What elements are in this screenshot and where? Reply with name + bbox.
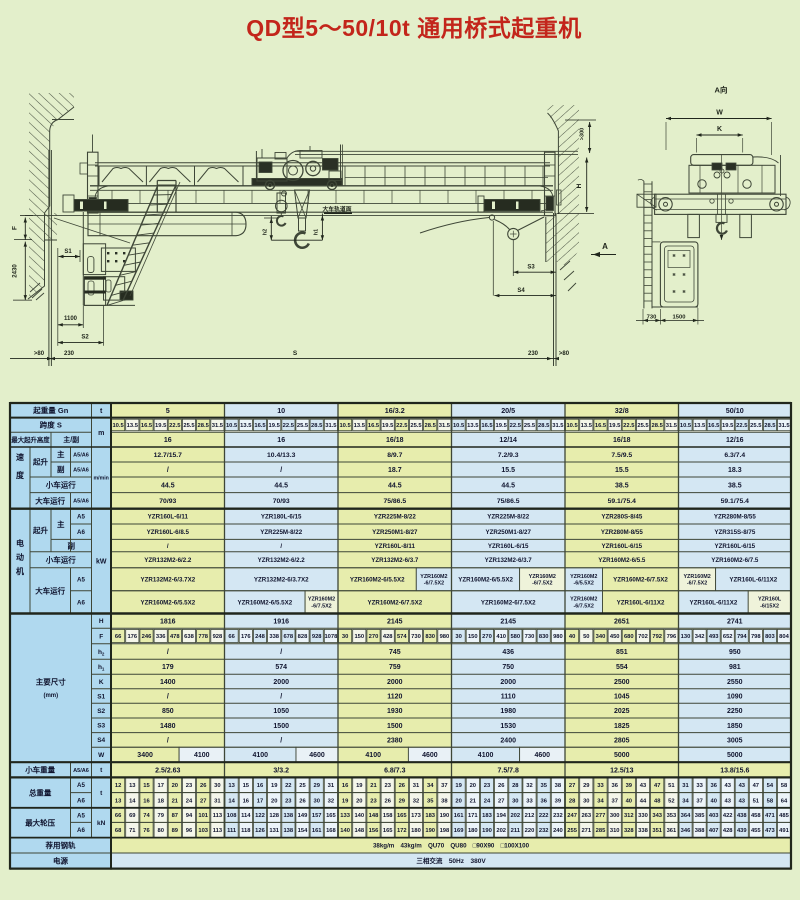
svg-text:230: 230 <box>64 351 75 357</box>
svg-text:140: 140 <box>354 813 364 819</box>
svg-text:1100: 1100 <box>64 316 78 322</box>
svg-text:8/9.7: 8/9.7 <box>387 452 402 459</box>
svg-text:13: 13 <box>129 783 136 789</box>
svg-text:YZR160M2-6/5.5X2: YZR160M2-6/5.5X2 <box>350 577 405 584</box>
svg-text:22.5: 22.5 <box>396 423 408 429</box>
svg-text:2000: 2000 <box>273 679 289 686</box>
svg-text:H: H <box>99 618 104 625</box>
svg-text:730: 730 <box>647 315 657 321</box>
svg-text:S2: S2 <box>81 335 89 341</box>
svg-text:678: 678 <box>283 634 293 640</box>
svg-text:7.5/7.8: 7.5/7.8 <box>497 767 519 774</box>
svg-text:1980: 1980 <box>500 708 516 715</box>
svg-text:338: 338 <box>638 828 648 834</box>
svg-text:702: 702 <box>638 634 648 640</box>
svg-text:33: 33 <box>597 783 604 789</box>
svg-text:/: / <box>280 737 282 744</box>
svg-text:194: 194 <box>496 813 506 819</box>
svg-text:25.5: 25.5 <box>524 423 536 429</box>
svg-text:25.5: 25.5 <box>183 423 195 429</box>
svg-text:YZR160L-6/15: YZR160L-6/15 <box>602 543 643 550</box>
svg-text:32: 32 <box>328 798 334 804</box>
svg-text:126: 126 <box>255 828 265 834</box>
svg-text:336: 336 <box>156 634 166 640</box>
svg-text:156: 156 <box>369 828 379 834</box>
svg-text:>300: >300 <box>580 128 586 140</box>
svg-text:47: 47 <box>654 783 660 789</box>
svg-text:机: 机 <box>16 566 24 576</box>
svg-text:YZR160M2-6/5.5: YZR160M2-6/5.5 <box>598 557 646 564</box>
svg-text:407: 407 <box>709 828 719 834</box>
svg-text:22: 22 <box>285 783 291 789</box>
svg-text:YZR160M2: YZR160M2 <box>529 574 556 580</box>
svg-text:m: m <box>98 430 104 437</box>
svg-text:190: 190 <box>440 813 450 819</box>
svg-text:24: 24 <box>484 798 491 804</box>
svg-text:10: 10 <box>277 406 285 415</box>
svg-text:66: 66 <box>115 634 122 640</box>
svg-text:40: 40 <box>626 798 632 804</box>
svg-text:87: 87 <box>172 813 178 819</box>
svg-text:33: 33 <box>526 798 533 804</box>
svg-text:638: 638 <box>184 634 194 640</box>
svg-text:161: 161 <box>312 828 322 834</box>
svg-text:34: 34 <box>427 783 434 789</box>
svg-text:31: 31 <box>328 783 335 789</box>
svg-text:1090: 1090 <box>727 694 743 701</box>
svg-text:271: 271 <box>581 828 591 834</box>
svg-text:277: 277 <box>596 813 606 819</box>
svg-text:27: 27 <box>498 798 504 804</box>
svg-text:212: 212 <box>525 813 535 819</box>
svg-text:30: 30 <box>455 634 461 640</box>
svg-text:161: 161 <box>454 813 464 819</box>
svg-text:330: 330 <box>638 813 648 819</box>
svg-text:A5/A6: A5/A6 <box>73 499 89 505</box>
svg-text:31.5: 31.5 <box>325 423 337 429</box>
svg-text:2.5/2.63: 2.5/2.63 <box>155 767 180 774</box>
svg-text:23: 23 <box>484 783 491 789</box>
svg-text:16.5: 16.5 <box>254 423 266 429</box>
svg-text:13: 13 <box>115 798 122 804</box>
svg-text:YZR250M1-8/27: YZR250M1-8/27 <box>372 529 418 536</box>
svg-text:5000: 5000 <box>727 752 743 759</box>
svg-text:20: 20 <box>356 798 362 804</box>
svg-text:750: 750 <box>502 664 514 671</box>
svg-text:A6: A6 <box>77 599 85 606</box>
svg-text:66: 66 <box>115 813 122 819</box>
svg-text:328: 328 <box>624 828 634 834</box>
svg-text:59.1/75.4: 59.1/75.4 <box>721 498 750 505</box>
svg-text:/: / <box>167 543 169 550</box>
svg-text:7.2/9.3: 7.2/9.3 <box>498 452 519 459</box>
svg-text:-6/15X2: -6/15X2 <box>760 603 779 609</box>
svg-text:94: 94 <box>186 813 193 819</box>
svg-text:101: 101 <box>198 813 208 819</box>
svg-text:大车运行: 大车运行 <box>35 585 65 595</box>
svg-text:25.5: 25.5 <box>637 423 649 429</box>
svg-text:17: 17 <box>257 798 263 804</box>
svg-text:YZR132M2-6/3.7X2: YZR132M2-6/3.7X2 <box>254 577 309 584</box>
svg-text:980: 980 <box>553 634 563 640</box>
svg-text:19.5: 19.5 <box>382 423 394 429</box>
svg-text:1500: 1500 <box>387 723 403 730</box>
svg-text:35: 35 <box>540 783 547 789</box>
svg-text:574: 574 <box>397 634 407 640</box>
svg-text:450: 450 <box>610 634 620 640</box>
svg-text:/: / <box>167 649 169 656</box>
svg-text:16.5: 16.5 <box>708 423 720 429</box>
svg-text:YZR225M-8/22: YZR225M-8/22 <box>374 514 417 521</box>
svg-text:YZR160M2: YZR160M2 <box>570 574 597 580</box>
svg-text:652: 652 <box>723 634 733 640</box>
svg-text:32: 32 <box>526 783 532 789</box>
svg-text:10.5: 10.5 <box>566 423 578 429</box>
svg-text:20: 20 <box>470 783 476 789</box>
svg-text:动: 动 <box>16 552 24 562</box>
svg-text:S3: S3 <box>97 723 105 730</box>
svg-text:428: 428 <box>723 828 733 834</box>
svg-text:4600: 4600 <box>535 752 551 759</box>
svg-text:35: 35 <box>427 798 434 804</box>
svg-text:51: 51 <box>668 783 675 789</box>
svg-text:/: / <box>280 467 282 474</box>
svg-text:19.5: 19.5 <box>609 423 621 429</box>
svg-text:493: 493 <box>709 634 719 640</box>
svg-text:44.5: 44.5 <box>501 482 515 489</box>
svg-text:16: 16 <box>257 783 264 789</box>
svg-text:491: 491 <box>779 828 789 834</box>
svg-text:kN: kN <box>97 820 106 827</box>
svg-text:2550: 2550 <box>727 679 743 686</box>
svg-text:71: 71 <box>129 828 136 834</box>
svg-text:176: 176 <box>127 634 137 640</box>
svg-text:YZR280S-8/45: YZR280S-8/45 <box>601 514 642 521</box>
svg-text:202: 202 <box>496 828 506 834</box>
svg-text:13.5: 13.5 <box>694 423 706 429</box>
svg-text:12/16: 12/16 <box>726 437 744 444</box>
svg-text:285: 285 <box>596 828 606 834</box>
svg-text:YZR132M2-6/2.2: YZR132M2-6/2.2 <box>144 557 192 564</box>
svg-text:1500: 1500 <box>273 723 289 730</box>
svg-text:27: 27 <box>569 783 575 789</box>
svg-text:10.5: 10.5 <box>226 423 238 429</box>
svg-text:A5/A6: A5/A6 <box>73 453 89 459</box>
svg-text:4100: 4100 <box>253 752 269 759</box>
svg-text:S4: S4 <box>517 288 525 294</box>
svg-text:YZR160M2: YZR160M2 <box>420 574 447 580</box>
svg-text:202: 202 <box>510 813 520 819</box>
svg-text:403: 403 <box>709 813 719 819</box>
svg-text:/: / <box>280 649 282 656</box>
svg-text:/: / <box>167 694 169 701</box>
svg-text:-6/5.5X2: -6/5.5X2 <box>574 580 594 586</box>
svg-text:2651: 2651 <box>614 618 630 625</box>
svg-text:165: 165 <box>383 828 393 834</box>
svg-text:12.7/15.7: 12.7/15.7 <box>154 452 183 459</box>
svg-text:A5/A6: A5/A6 <box>73 768 89 774</box>
svg-text:19.5: 19.5 <box>269 423 281 429</box>
svg-text:22.5: 22.5 <box>169 423 181 429</box>
svg-text:14: 14 <box>228 798 235 804</box>
svg-text:电: 电 <box>16 538 24 548</box>
svg-text:YZR160L-6/8.5: YZR160L-6/8.5 <box>147 529 190 536</box>
svg-text:总重量: 总重量 <box>29 787 52 797</box>
svg-text:25.5: 25.5 <box>750 423 762 429</box>
svg-text:473: 473 <box>765 828 775 834</box>
svg-text:小车重量: 小车重量 <box>25 765 55 775</box>
svg-text:5000: 5000 <box>614 752 630 759</box>
svg-text:10.5: 10.5 <box>339 423 351 429</box>
svg-text:2741: 2741 <box>727 618 743 625</box>
svg-text:16.5: 16.5 <box>368 423 380 429</box>
svg-text:171: 171 <box>468 813 478 819</box>
svg-text:422: 422 <box>723 813 733 819</box>
svg-text:39: 39 <box>626 783 633 789</box>
svg-text:103: 103 <box>198 828 208 834</box>
svg-text:471: 471 <box>765 813 775 819</box>
svg-text:1930: 1930 <box>387 708 403 715</box>
svg-text:1050: 1050 <box>273 708 289 715</box>
svg-text:792: 792 <box>652 634 662 640</box>
svg-text:312: 312 <box>624 813 634 819</box>
svg-text:183: 183 <box>482 813 492 819</box>
svg-text:三相交流 50Hz 380V: 三相交流 50Hz 380V <box>416 856 486 865</box>
svg-text:23: 23 <box>370 798 377 804</box>
svg-text:21: 21 <box>470 798 477 804</box>
svg-text:13.5: 13.5 <box>354 423 366 429</box>
svg-text:26: 26 <box>399 783 406 789</box>
svg-text:240: 240 <box>553 828 563 834</box>
svg-text:16: 16 <box>342 783 349 789</box>
svg-text:310: 310 <box>610 828 620 834</box>
svg-text:YZR280M-8/55: YZR280M-8/55 <box>714 514 757 521</box>
svg-text:3005: 3005 <box>727 737 743 744</box>
svg-text:96: 96 <box>186 828 193 834</box>
svg-text:2000: 2000 <box>387 679 403 686</box>
svg-text:16: 16 <box>277 437 285 444</box>
svg-text:19.5: 19.5 <box>496 423 508 429</box>
svg-text:803: 803 <box>765 634 775 640</box>
svg-text:主: 主 <box>57 449 65 459</box>
svg-text:850: 850 <box>162 708 174 715</box>
svg-text:YZR250M1-8/27: YZR250M1-8/27 <box>485 529 531 536</box>
svg-text:F: F <box>99 633 103 640</box>
svg-text:26: 26 <box>384 798 391 804</box>
svg-text:YZR132M2-6/3.7: YZR132M2-6/3.7 <box>485 557 533 564</box>
svg-text:148: 148 <box>354 828 364 834</box>
svg-text:h1: h1 <box>314 229 320 235</box>
svg-text:428: 428 <box>383 634 393 640</box>
svg-text:70/93: 70/93 <box>273 498 290 505</box>
svg-text:н: н <box>672 289 675 295</box>
svg-text:31.5: 31.5 <box>778 423 790 429</box>
svg-text:W: W <box>98 752 105 759</box>
svg-text:43: 43 <box>724 783 731 789</box>
svg-text:13.5: 13.5 <box>127 423 139 429</box>
svg-text:44.5: 44.5 <box>388 482 402 489</box>
svg-text:778: 778 <box>198 634 208 640</box>
svg-text:起重量 Gn: 起重量 Gn <box>32 405 68 415</box>
svg-text:16/18: 16/18 <box>386 437 404 444</box>
svg-text:47: 47 <box>753 783 759 789</box>
svg-text:最大轮压: 最大轮压 <box>25 817 55 827</box>
svg-text:5: 5 <box>166 406 170 415</box>
svg-text:69: 69 <box>129 813 136 819</box>
svg-text:度: 度 <box>16 470 25 480</box>
svg-text:59.1/75.4: 59.1/75.4 <box>608 498 637 505</box>
svg-text:230: 230 <box>528 351 539 357</box>
svg-text:YZR280M-8/55: YZR280M-8/55 <box>601 529 644 536</box>
svg-text:436: 436 <box>502 649 514 656</box>
svg-text:165: 165 <box>326 813 336 819</box>
svg-text:54: 54 <box>767 783 774 789</box>
svg-text:851: 851 <box>616 649 628 656</box>
svg-text:190: 190 <box>425 828 435 834</box>
svg-text:YZR225M-8/22: YZR225M-8/22 <box>487 514 530 521</box>
svg-text:S2: S2 <box>97 708 105 715</box>
svg-text:S1: S1 <box>97 693 105 700</box>
svg-text:180: 180 <box>468 828 478 834</box>
svg-text:23: 23 <box>186 783 193 789</box>
svg-text:70/93: 70/93 <box>159 498 176 505</box>
svg-text:179: 179 <box>162 664 174 671</box>
svg-text:263: 263 <box>581 813 591 819</box>
svg-text:16: 16 <box>243 798 250 804</box>
svg-text:2145: 2145 <box>500 618 516 625</box>
svg-text:20: 20 <box>172 783 178 789</box>
svg-text:1045: 1045 <box>614 694 630 701</box>
svg-text:29: 29 <box>399 798 406 804</box>
svg-text:40: 40 <box>569 634 575 640</box>
svg-text:364: 364 <box>681 813 691 819</box>
svg-text:YZR160L-6/15: YZR160L-6/15 <box>488 543 529 550</box>
svg-text:YZR160L-6/11X2: YZR160L-6/11X2 <box>617 599 665 606</box>
svg-text:26: 26 <box>299 798 306 804</box>
svg-text:4100: 4100 <box>194 752 210 759</box>
svg-text:7.5/9.5: 7.5/9.5 <box>611 452 632 459</box>
svg-text:S1: S1 <box>64 249 72 255</box>
svg-text:YZR160M2-6/7.5X2: YZR160M2-6/7.5X2 <box>481 599 536 606</box>
svg-text:794: 794 <box>737 634 747 640</box>
svg-text:2500: 2500 <box>614 679 630 686</box>
svg-text:K: K <box>717 126 722 133</box>
svg-text:30: 30 <box>313 798 319 804</box>
svg-text:157: 157 <box>312 813 322 819</box>
svg-text:44: 44 <box>640 798 647 804</box>
svg-text:338: 338 <box>269 634 279 640</box>
svg-text:-6/7.5X2: -6/7.5X2 <box>687 580 707 586</box>
svg-text:YZR132M2-6/3.7X2: YZR132M2-6/3.7X2 <box>140 577 195 584</box>
svg-text:23: 23 <box>285 798 292 804</box>
svg-text:10.5: 10.5 <box>453 423 465 429</box>
svg-text:S3: S3 <box>527 265 535 271</box>
svg-text:342: 342 <box>695 634 705 640</box>
svg-text:25.5: 25.5 <box>297 423 309 429</box>
svg-text:YZR132M2-6/2.2: YZR132M2-6/2.2 <box>258 557 306 564</box>
svg-text:1916: 1916 <box>273 618 289 625</box>
svg-text:YZR160M2-6/7.5: YZR160M2-6/7.5 <box>711 557 759 564</box>
svg-text:н: н <box>682 253 685 259</box>
svg-text:A5: A5 <box>77 514 85 521</box>
svg-text:1500: 1500 <box>673 315 686 321</box>
svg-text:232: 232 <box>553 813 563 819</box>
svg-text:981: 981 <box>729 664 741 671</box>
svg-text:232: 232 <box>539 828 549 834</box>
svg-text:30: 30 <box>512 798 518 804</box>
svg-text:138: 138 <box>283 813 293 819</box>
svg-text:A6: A6 <box>77 827 85 834</box>
svg-text:19: 19 <box>455 783 462 789</box>
svg-text:830: 830 <box>539 634 549 640</box>
svg-text:6.3/7.4: 6.3/7.4 <box>724 452 745 459</box>
svg-text:YZR160M2: YZR160M2 <box>683 574 710 580</box>
svg-text:980: 980 <box>440 634 450 640</box>
svg-text:-6/7.5X2: -6/7.5X2 <box>424 580 444 586</box>
svg-text:122: 122 <box>255 813 265 819</box>
svg-text:A向: A向 <box>715 85 728 95</box>
svg-text:н: н <box>672 272 675 278</box>
svg-text:58: 58 <box>767 798 774 804</box>
svg-text:18.7: 18.7 <box>388 467 402 474</box>
svg-text:108: 108 <box>227 813 237 819</box>
svg-text:12.5/13: 12.5/13 <box>610 767 633 774</box>
svg-text:43: 43 <box>739 798 746 804</box>
svg-text:(mm): (mm) <box>43 693 58 699</box>
svg-text:38kg/m 43kg/m QU70 QU80 □90X90: 38kg/m 43kg/m QU70 QU80 □90X90 □100X100 <box>373 843 530 850</box>
svg-text:н: н <box>682 272 685 278</box>
svg-text:20: 20 <box>271 798 277 804</box>
svg-text:20: 20 <box>455 798 461 804</box>
svg-text:YZR180L-6/15: YZR180L-6/15 <box>261 514 302 521</box>
svg-text:16/3.2: 16/3.2 <box>385 406 405 415</box>
svg-text:32/8: 32/8 <box>615 406 629 415</box>
svg-text:928: 928 <box>213 634 223 640</box>
svg-text:580: 580 <box>510 634 520 640</box>
svg-text:198: 198 <box>440 828 450 834</box>
svg-text:28.5: 28.5 <box>538 423 550 429</box>
svg-text:22.5: 22.5 <box>510 423 522 429</box>
svg-text:起升: 起升 <box>32 457 48 467</box>
svg-text:31.5: 31.5 <box>666 423 678 429</box>
svg-text:13: 13 <box>228 783 235 789</box>
svg-text:A6: A6 <box>77 529 85 536</box>
svg-text:150: 150 <box>354 634 364 640</box>
svg-text:438: 438 <box>737 813 747 819</box>
svg-text:28.5: 28.5 <box>764 423 776 429</box>
svg-text:н: н <box>682 289 685 295</box>
svg-text:3/3.2: 3/3.2 <box>273 767 289 774</box>
svg-text:1825: 1825 <box>614 723 630 730</box>
svg-text:13.5: 13.5 <box>467 423 479 429</box>
svg-text:13.5: 13.5 <box>240 423 252 429</box>
svg-text:80: 80 <box>157 828 163 834</box>
svg-text:37: 37 <box>441 783 447 789</box>
svg-text:主: 主 <box>57 519 65 529</box>
svg-text:168: 168 <box>326 828 336 834</box>
svg-text:2380: 2380 <box>387 737 403 744</box>
svg-text:YZR160L: YZR160L <box>758 597 782 603</box>
svg-text:31.5: 31.5 <box>552 423 564 429</box>
svg-text:66: 66 <box>228 634 235 640</box>
svg-text:50: 50 <box>583 634 589 640</box>
svg-text:大车运行: 大车运行 <box>35 495 65 505</box>
svg-text:A6: A6 <box>77 797 85 804</box>
svg-text:68: 68 <box>115 828 122 834</box>
svg-text:A5: A5 <box>77 812 85 819</box>
svg-text:K: K <box>99 679 104 686</box>
svg-text:YZR160L-6/11: YZR160L-6/11 <box>148 514 189 521</box>
